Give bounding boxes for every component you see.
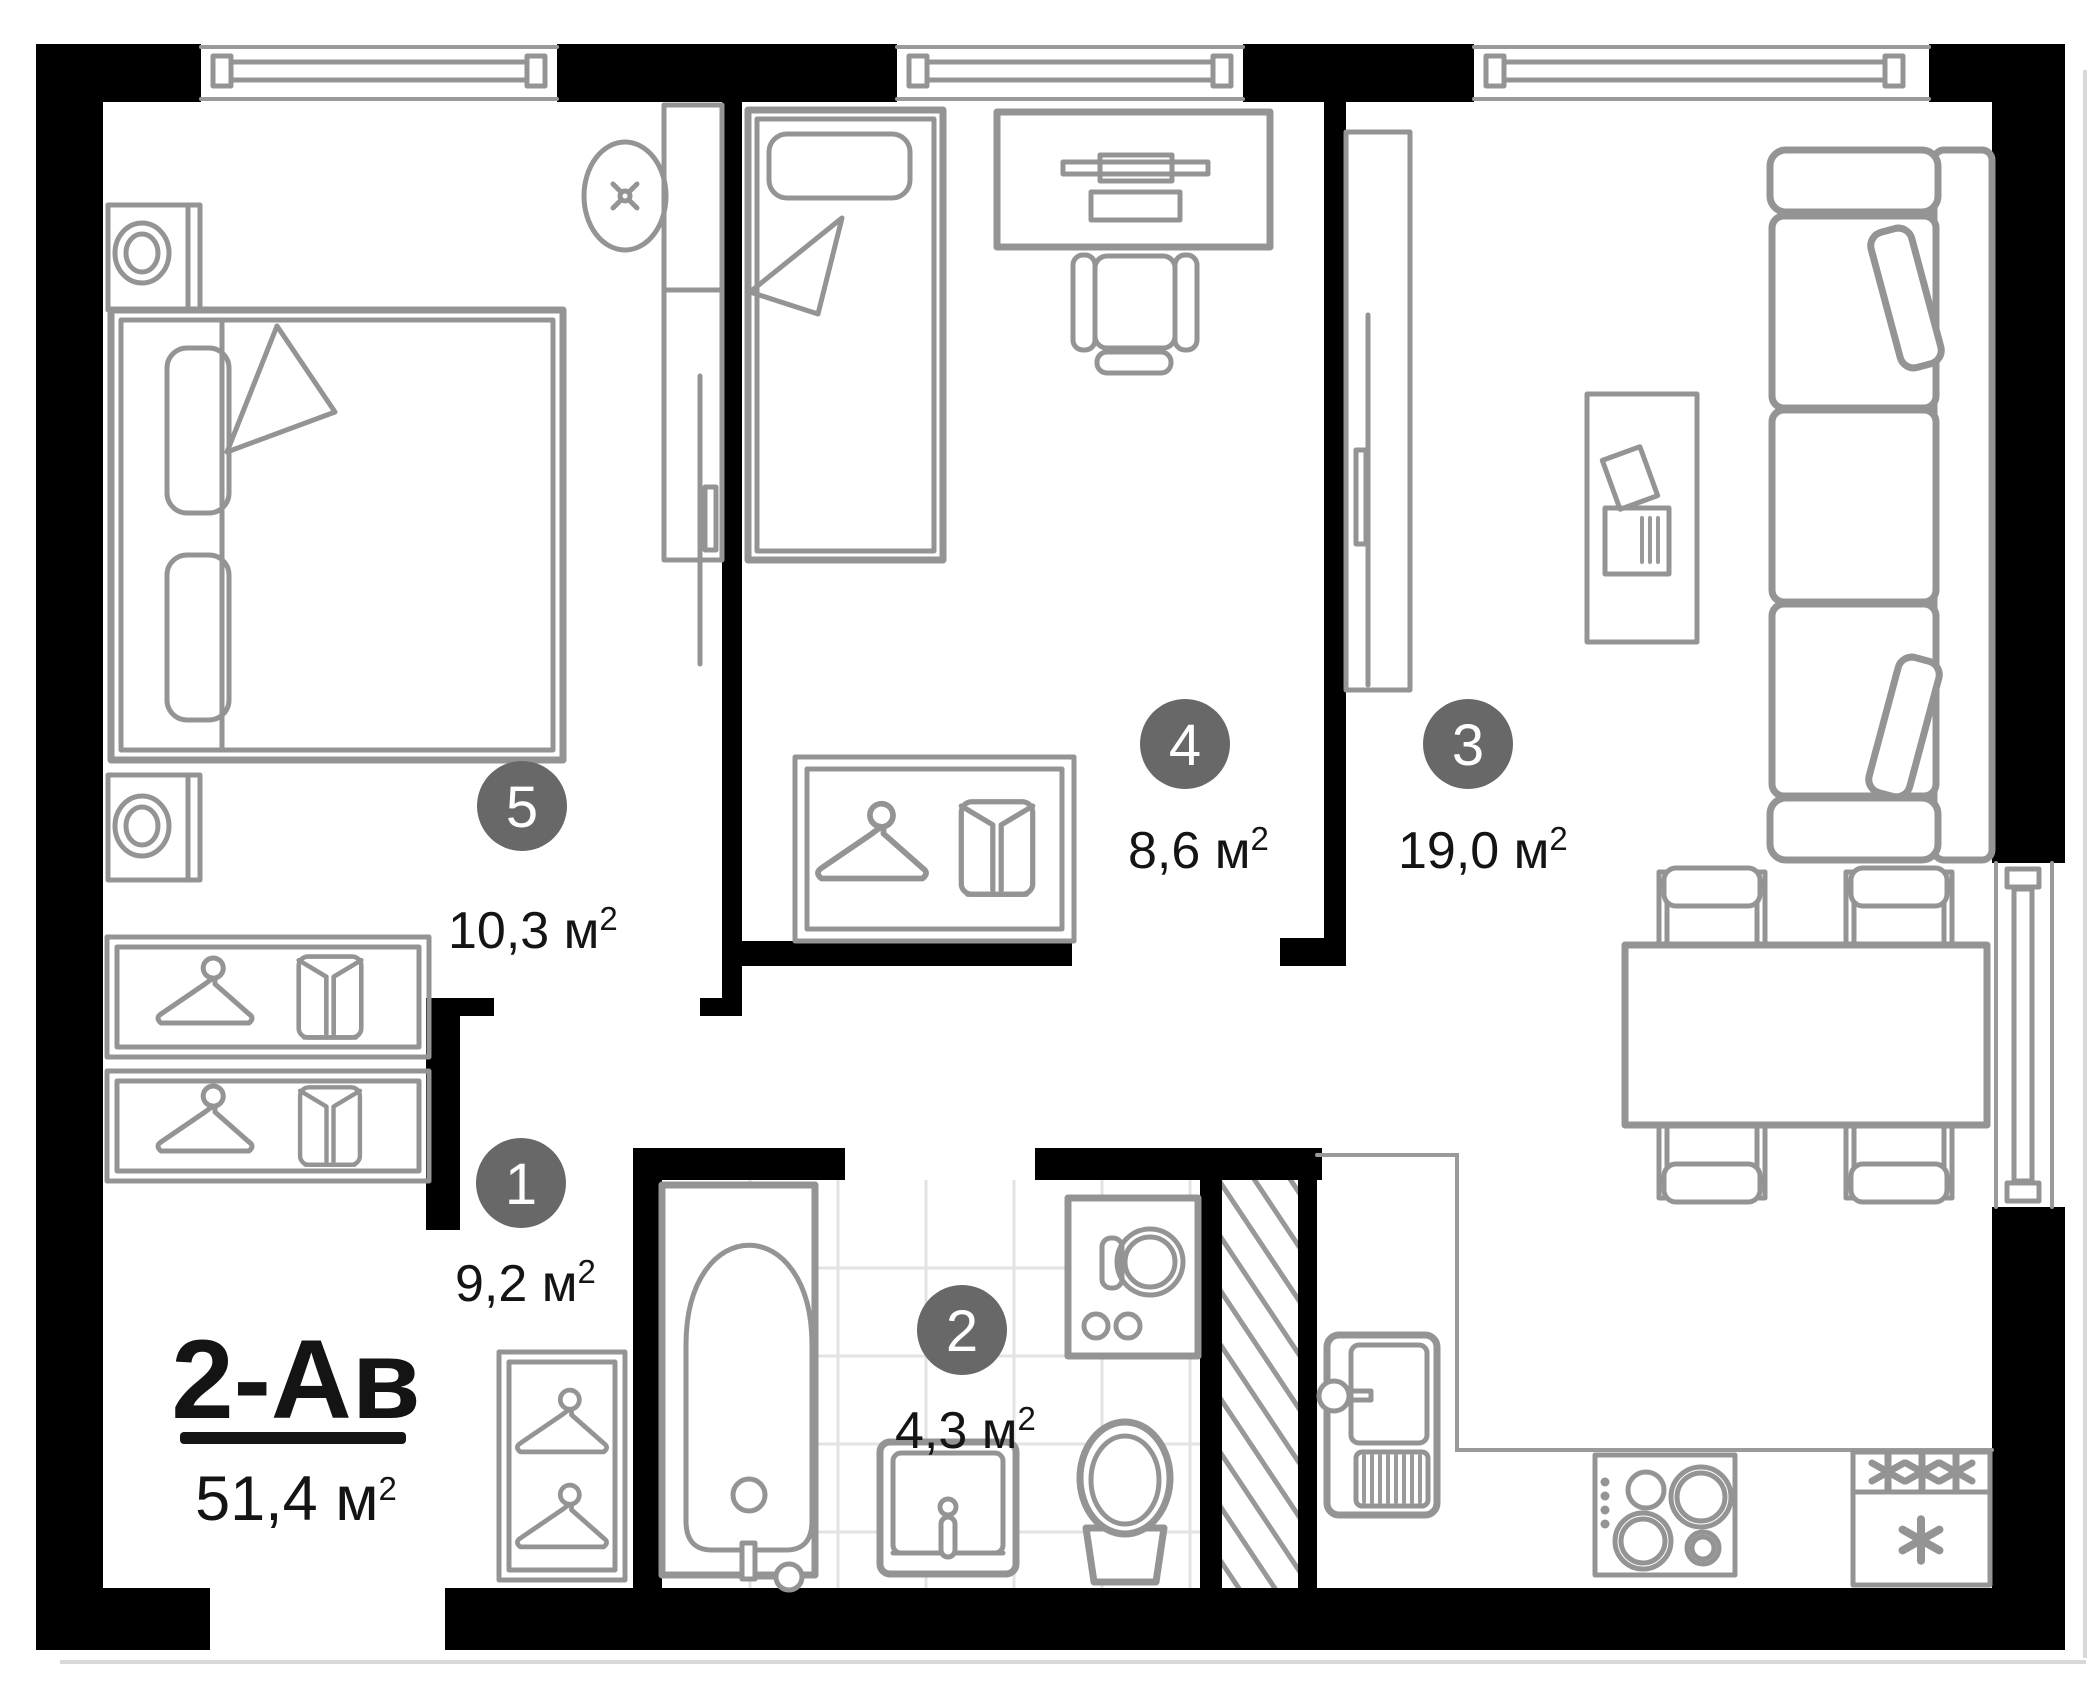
fridge-freezer-icon xyxy=(1853,1452,1990,1585)
room-area: 8,6 м2 xyxy=(1128,820,1269,880)
nightstand-top xyxy=(108,205,200,310)
room-3-living-kitchen: 3 19,0 м2 xyxy=(1317,132,1992,1585)
wall-top-3 xyxy=(1243,44,1474,102)
cooktop-icon xyxy=(1595,1455,1735,1575)
washing-machine-icon xyxy=(1068,1198,1198,1356)
keyboard-icon xyxy=(1091,192,1180,220)
room-number: 5 xyxy=(506,775,538,840)
wall-right-lower xyxy=(1992,1207,2065,1650)
wall-room5-room4 xyxy=(722,102,742,1016)
refrigerator-icon xyxy=(1319,1335,1437,1515)
wall-bottom xyxy=(445,1588,2065,1650)
sink-icon xyxy=(880,1442,1016,1574)
desk-chair xyxy=(1073,255,1197,373)
wall-room4-bottom xyxy=(742,941,1072,966)
window-right-room3 xyxy=(1996,863,2052,1207)
dining-table xyxy=(1625,945,1987,1125)
monitor-stand xyxy=(1100,155,1172,181)
floor-plan-page: 5 10,3 м2 xyxy=(0,0,2100,1689)
room-label-4: 4 8,6 м2 xyxy=(1128,699,1269,880)
room-number: 3 xyxy=(1452,713,1484,778)
wall-bathroom-left xyxy=(633,1148,662,1588)
plan-total-area: 51,4 м2 xyxy=(195,1464,397,1534)
room-area: 10,3 м2 xyxy=(448,900,618,960)
sofa xyxy=(1770,150,1992,860)
wardrobe-room4 xyxy=(795,757,1074,941)
room-1-hallway: 1 9,2 м2 2-Ав 51,4 м2 xyxy=(107,937,625,1580)
ventilation-shaft xyxy=(1222,1180,1298,1588)
window-top-room3 xyxy=(1474,47,1929,99)
room-area: 9,2 м2 xyxy=(455,1253,596,1313)
room-label-3: 3 19,0 м2 xyxy=(1398,699,1568,880)
wall-right-upper xyxy=(1992,44,2065,863)
sofa-cushion xyxy=(1772,410,1936,602)
room-4-bedroom: 4 8,6 м2 xyxy=(748,110,1270,941)
window-top-room4 xyxy=(897,47,1243,99)
room-5-master-bedroom: 5 10,3 м2 xyxy=(108,105,722,960)
dining-chair xyxy=(1846,1124,1952,1202)
kitchen-area xyxy=(1317,1155,1992,1585)
window-top-room5 xyxy=(201,47,557,99)
title-underline xyxy=(180,1432,406,1444)
bathtub-icon xyxy=(662,1185,815,1590)
room-label-1: 1 9,2 м2 xyxy=(455,1138,596,1313)
wall-bottom-left-corner xyxy=(36,1588,210,1650)
wall-room4-room3-foot xyxy=(1280,938,1346,966)
room-area: 19,0 м2 xyxy=(1398,820,1568,880)
dining-table-set xyxy=(1625,868,1987,1202)
book xyxy=(1602,447,1657,510)
wardrobe-room5 xyxy=(664,105,722,664)
room-area: 4,3 м2 xyxy=(895,1400,1036,1460)
closet-lower xyxy=(107,1071,429,1181)
room-number: 2 xyxy=(946,1299,978,1364)
dining-chair xyxy=(1659,868,1765,946)
floor-plan-drawing: 5 10,3 м2 xyxy=(0,0,2100,1689)
plan-code: 2-Ав xyxy=(171,1317,420,1442)
wall-left xyxy=(36,44,103,1650)
blanket-fold xyxy=(750,218,842,314)
room-label-5: 5 10,3 м2 xyxy=(448,761,618,960)
coffee-table xyxy=(1587,394,1697,642)
wall-bathroom-top-left xyxy=(633,1148,845,1180)
pillow xyxy=(769,134,910,198)
dining-chair xyxy=(1659,1124,1765,1202)
toilet-icon xyxy=(1080,1422,1170,1582)
closet-entrance xyxy=(499,1352,625,1580)
single-bed xyxy=(748,110,943,560)
monitor-icon xyxy=(1063,162,1208,174)
wall-room4-room3 xyxy=(1324,102,1346,966)
nightstand-bottom xyxy=(108,775,200,880)
room-number: 1 xyxy=(505,1152,537,1217)
title-block: 2-Ав 51,4 м2 xyxy=(171,1317,420,1534)
double-bed xyxy=(111,310,563,760)
room-number: 4 xyxy=(1169,713,1201,778)
blanket-fold xyxy=(227,326,335,452)
sofa-armrest xyxy=(1770,798,1938,860)
wall-top-2 xyxy=(557,44,897,102)
desk xyxy=(997,112,1270,247)
wall-bathroom-right xyxy=(1200,1148,1222,1588)
closet-upper xyxy=(107,937,429,1057)
wall-room5-door-stub xyxy=(700,998,722,1016)
sofa-armrest xyxy=(1770,150,1938,212)
wall-shaft-right xyxy=(1298,1148,1317,1588)
wall-bathroom-top-right xyxy=(1035,1148,1322,1180)
dining-chair xyxy=(1846,868,1952,946)
ceiling-light-icon xyxy=(584,142,666,250)
wardrobe-room3 xyxy=(1346,132,1410,690)
